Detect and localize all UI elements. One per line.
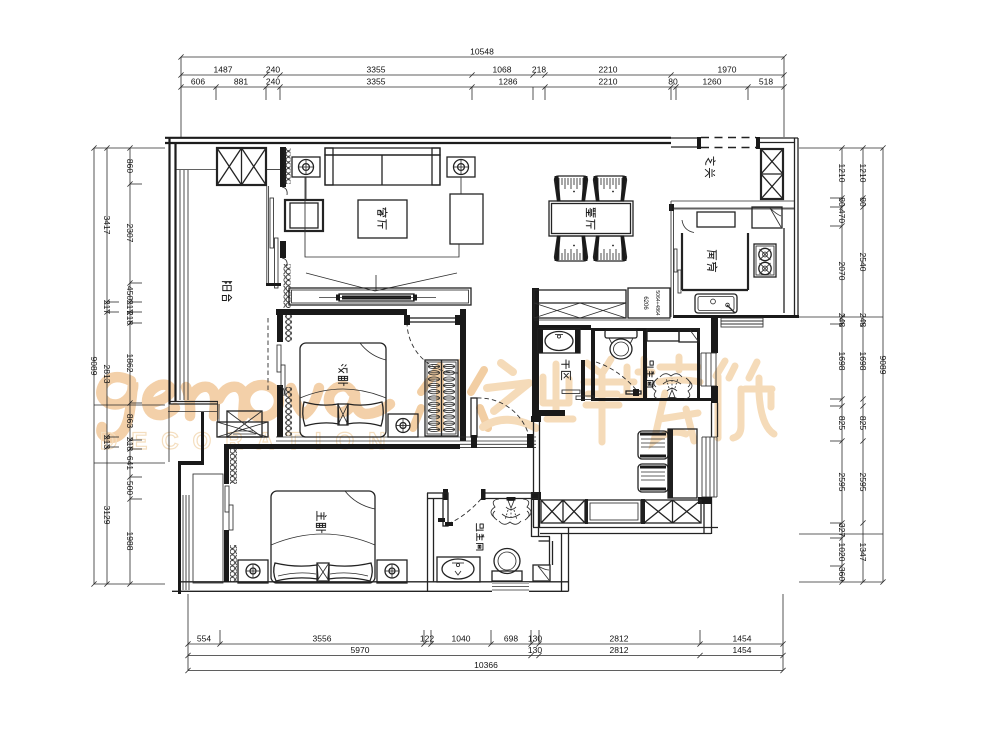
svg-text:248: 248 [858, 313, 868, 327]
svg-text:1347: 1347 [858, 543, 868, 562]
svg-text:470: 470 [837, 209, 847, 223]
svg-text:130: 130 [528, 645, 542, 655]
svg-text:1260: 1260 [703, 77, 722, 87]
svg-text:5970: 5970 [351, 645, 370, 655]
svg-text:698: 698 [504, 634, 518, 644]
svg-text:3355: 3355 [367, 65, 386, 75]
svg-text:2210: 2210 [599, 77, 618, 87]
svg-text:240: 240 [266, 77, 280, 87]
svg-text:10366: 10366 [474, 660, 498, 670]
svg-text:450: 450 [125, 286, 135, 300]
svg-text:1988: 1988 [125, 532, 135, 551]
svg-text:554: 554 [197, 634, 211, 644]
svg-text:1210: 1210 [858, 164, 868, 183]
svg-text:1862: 1862 [125, 354, 135, 373]
svg-text:1040: 1040 [452, 634, 471, 644]
svg-text:1020: 1020 [837, 543, 847, 562]
svg-text:9089: 9089 [878, 356, 888, 375]
svg-text:80: 80 [858, 197, 868, 207]
svg-text:5064+4864: 5064+4864 [654, 290, 660, 315]
svg-text:10548: 10548 [470, 47, 494, 57]
svg-text:327: 327 [837, 523, 847, 537]
svg-text:1487: 1487 [214, 65, 233, 75]
svg-text:2813: 2813 [102, 365, 112, 384]
svg-text:80: 80 [668, 77, 678, 87]
svg-text:2540: 2540 [858, 253, 868, 272]
svg-text:3129: 3129 [102, 506, 112, 525]
svg-text:825: 825 [858, 416, 868, 430]
svg-text:130: 130 [528, 634, 542, 644]
svg-text:3417: 3417 [102, 216, 112, 235]
svg-text:500: 500 [125, 481, 135, 495]
svg-text:1454: 1454 [733, 634, 752, 644]
svg-text:860: 860 [125, 159, 135, 173]
svg-text:1970: 1970 [718, 65, 737, 75]
svg-text:518: 518 [759, 77, 773, 87]
svg-text:1454: 1454 [733, 645, 752, 655]
svg-text:240: 240 [266, 65, 280, 75]
svg-text:1068: 1068 [493, 65, 512, 75]
svg-text:218: 218 [532, 65, 546, 75]
svg-text:6206: 6206 [642, 296, 648, 310]
svg-text:881: 881 [234, 77, 248, 87]
svg-text:1286: 1286 [499, 77, 518, 87]
svg-text:3355: 3355 [367, 77, 386, 87]
svg-text:3556: 3556 [313, 634, 332, 644]
svg-text:360: 360 [837, 567, 847, 581]
svg-text:2812: 2812 [610, 634, 629, 644]
svg-text:2595: 2595 [837, 473, 847, 492]
svg-text:1210: 1210 [837, 164, 847, 183]
svg-text:80: 80 [837, 197, 847, 207]
svg-text:1698: 1698 [858, 352, 868, 371]
svg-text:2595: 2595 [858, 473, 868, 492]
svg-text:248: 248 [837, 313, 847, 327]
svg-text:9089: 9089 [89, 357, 99, 376]
svg-text:863: 863 [125, 414, 135, 428]
svg-text:825: 825 [837, 416, 847, 430]
svg-text:606: 606 [191, 77, 205, 87]
svg-text:2210: 2210 [599, 65, 618, 75]
svg-text:122: 122 [420, 634, 434, 644]
svg-text:2070: 2070 [837, 262, 847, 281]
svg-text:2307: 2307 [125, 224, 135, 243]
svg-text:2812: 2812 [610, 645, 629, 655]
svg-text:1698: 1698 [837, 352, 847, 371]
